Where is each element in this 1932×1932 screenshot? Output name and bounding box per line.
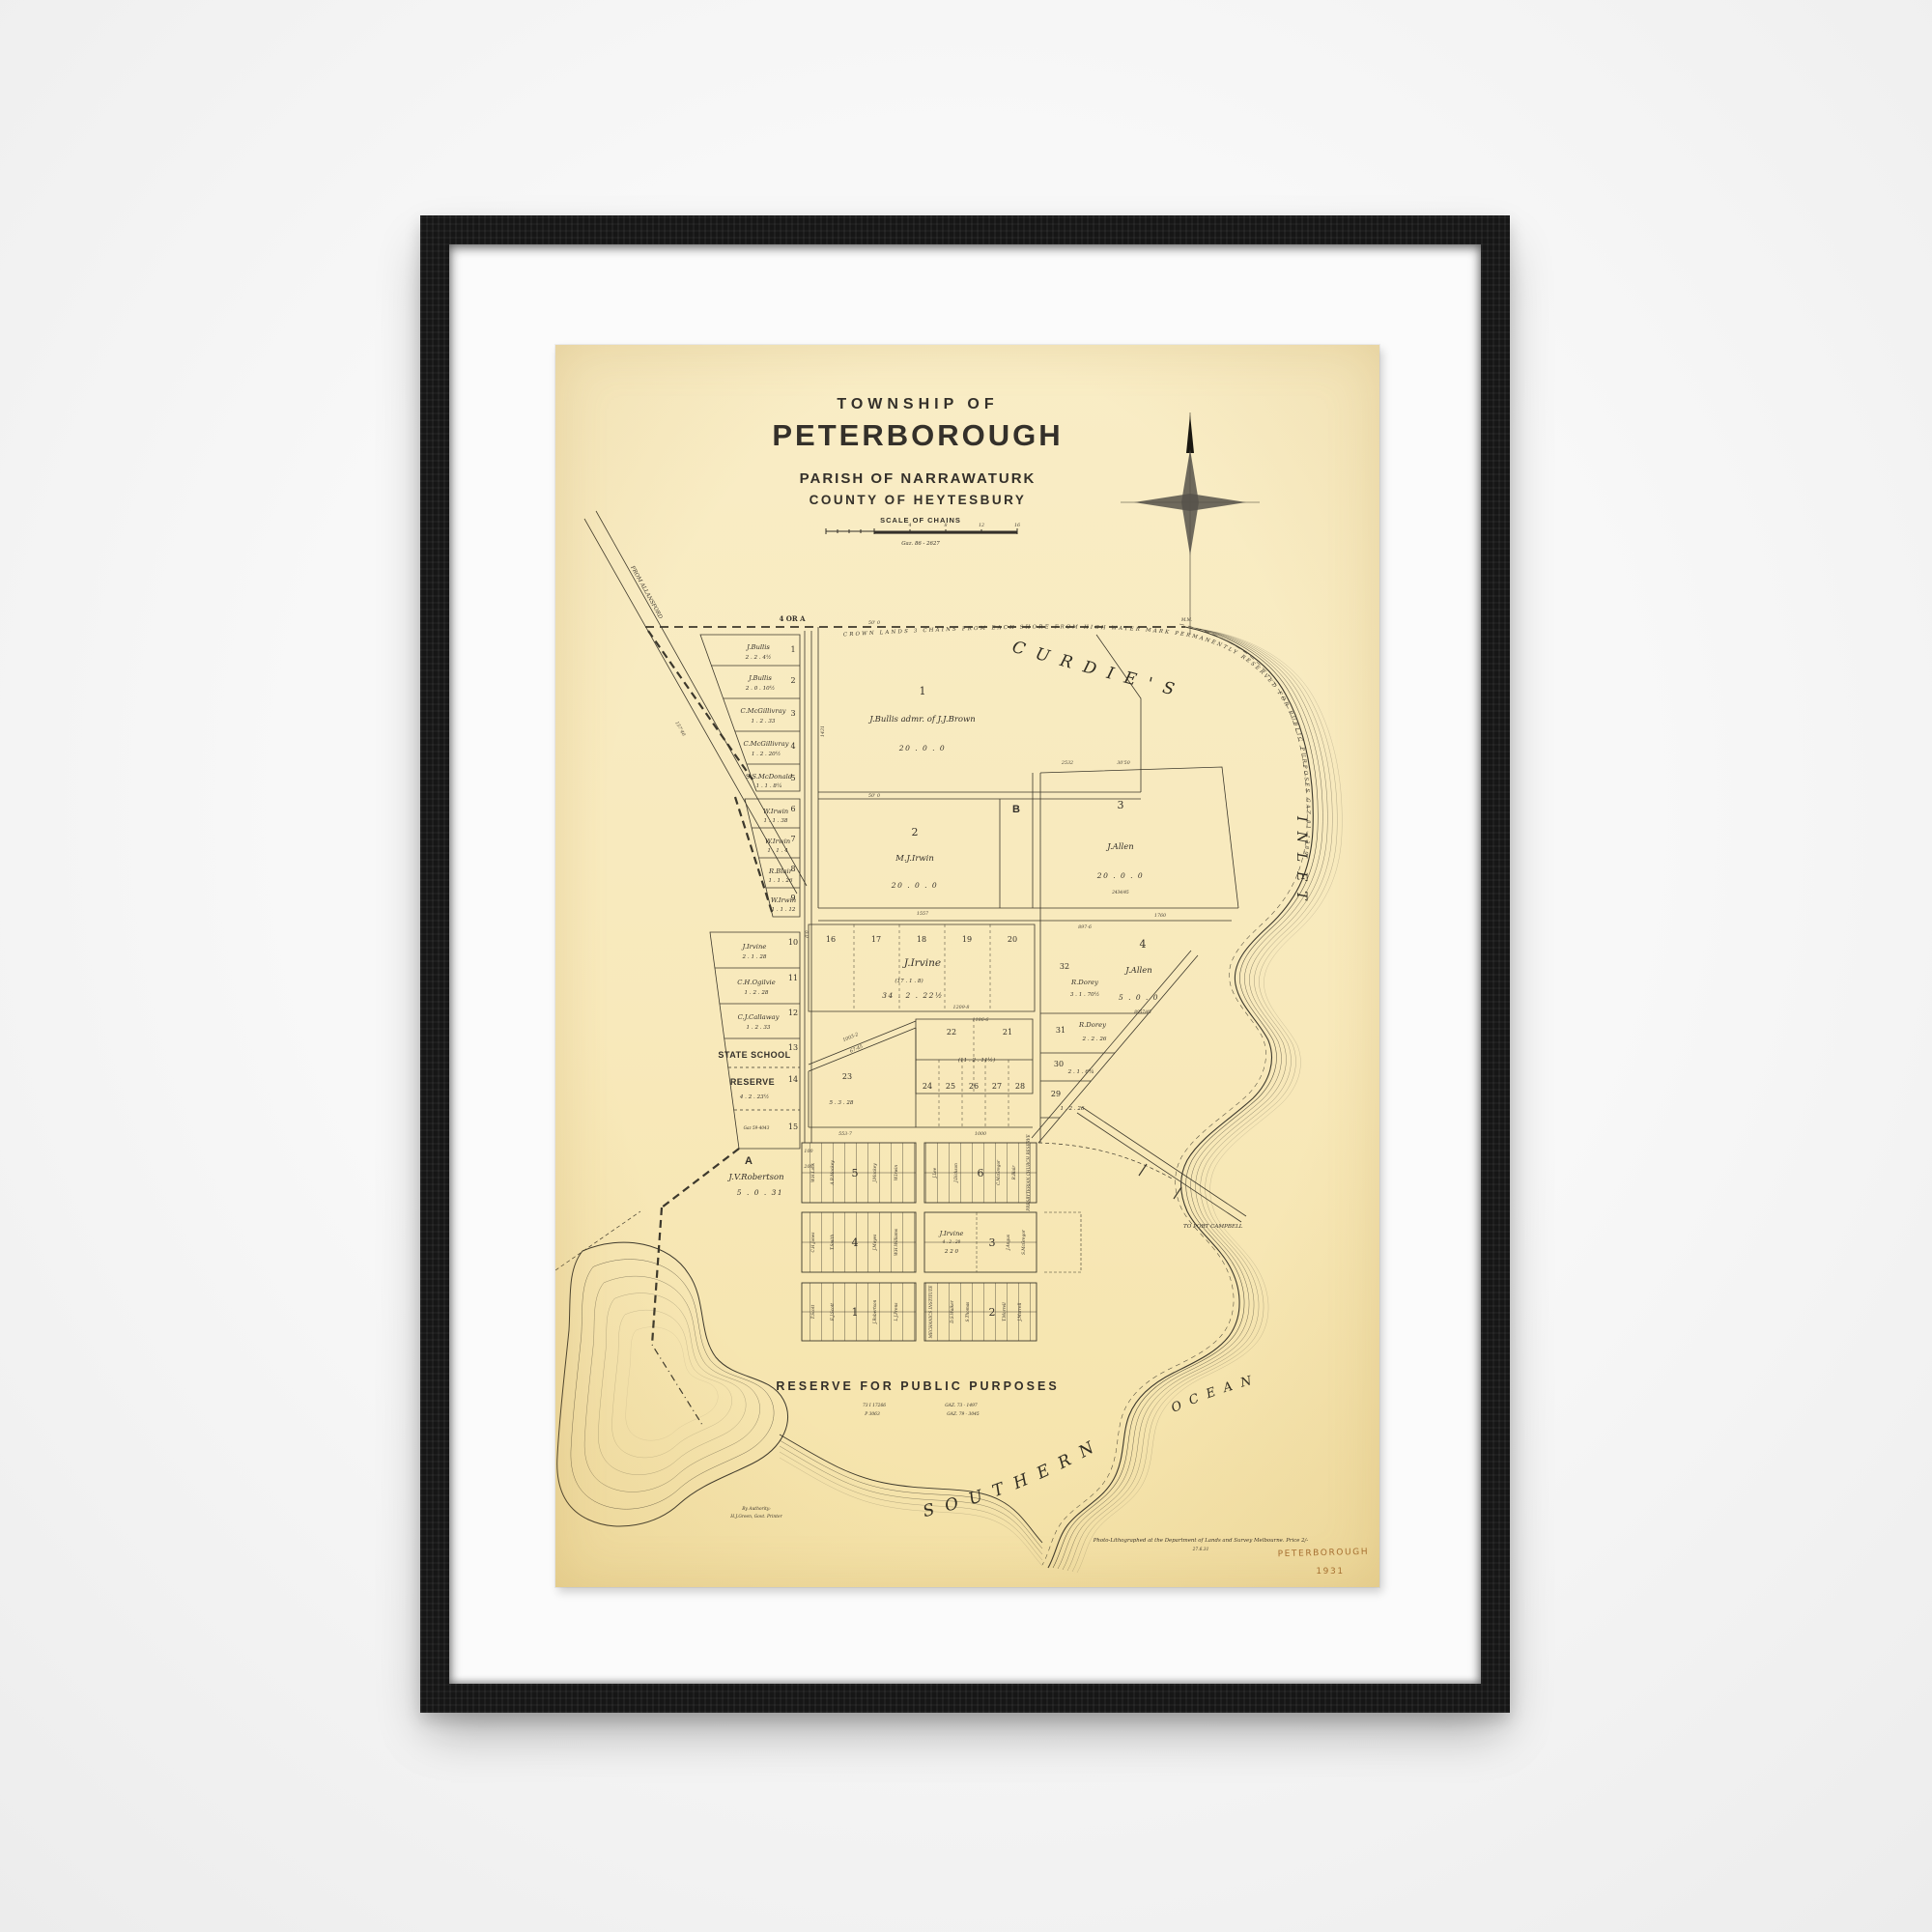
mat-board: TOWNSHIP OF PETERBOROUGH PARISH OF NARRA… [449, 244, 1481, 1684]
picture-frame: TOWNSHIP OF PETERBOROUGH PARISH OF NARRA… [420, 215, 1510, 1713]
map-paper: TOWNSHIP OF PETERBOROUGH PARISH OF NARRA… [555, 345, 1379, 1587]
paper-age-vignette [555, 345, 1379, 1587]
map-svg: TOWNSHIP OF PETERBOROUGH PARISH OF NARRA… [555, 345, 1379, 1587]
page: { "colors":{ "background":"#f0f0f0","fra… [0, 0, 1932, 1932]
